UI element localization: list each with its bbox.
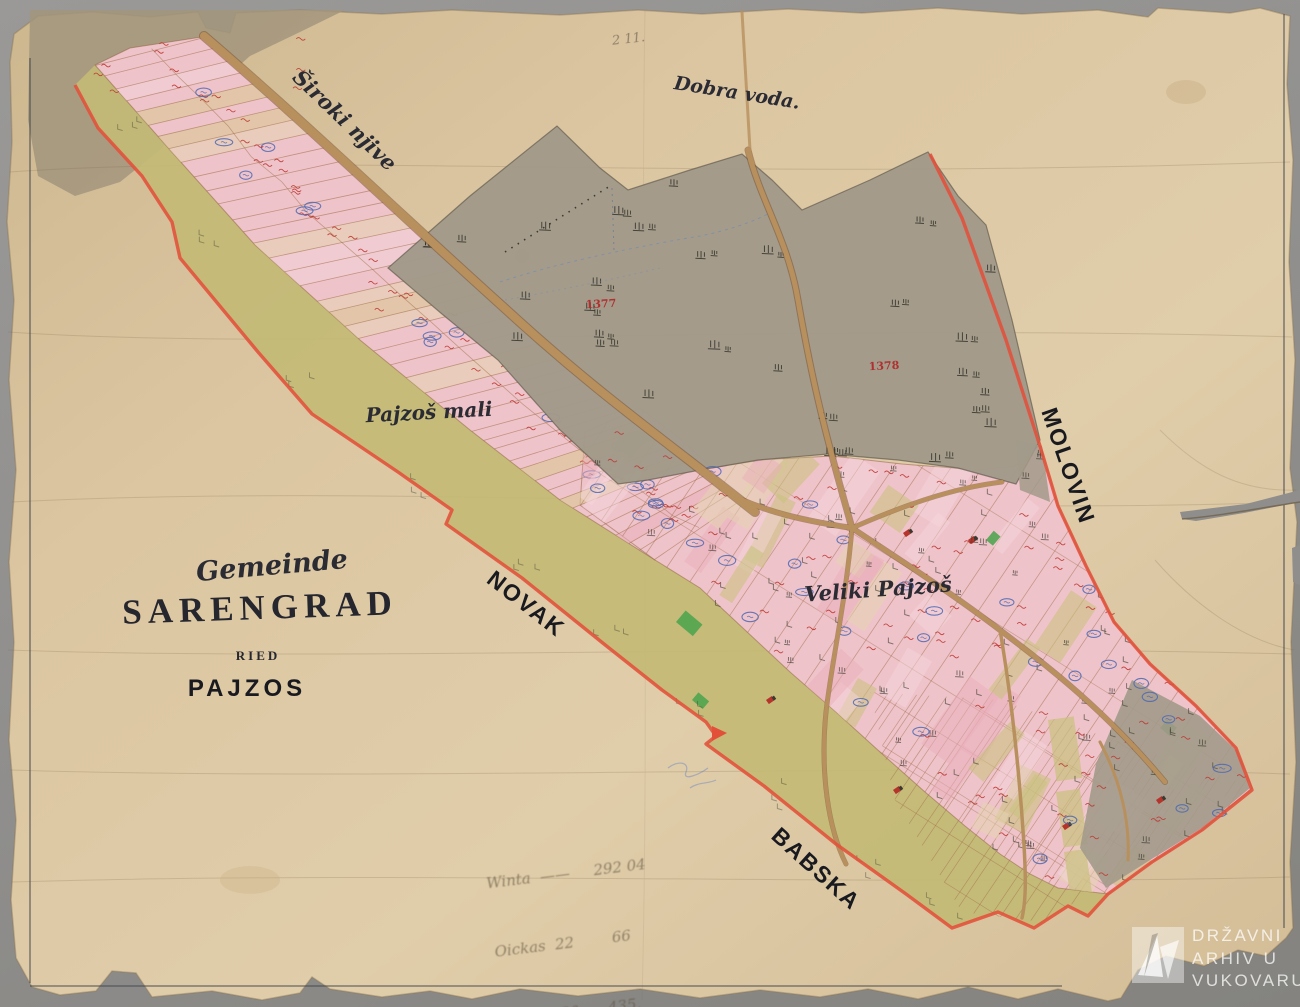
watermark-line: DRŽAVNI [1192,925,1300,948]
archive-watermark: DRŽAVNI ARHIV U VUKOVARU [1192,925,1300,993]
map-scan-artwork [0,0,1300,1007]
archive-logo-glyph [1132,927,1184,983]
watermark-line: VUKOVARU [1192,970,1300,993]
watermark-line: ARHIV U [1192,948,1300,971]
pencil-note-line: Wub 30 435. [502,990,664,1007]
pencil-note-line: Oickas 22 66 [493,921,655,963]
pencil-note-line: Winta —— 292 04 [485,853,647,895]
scanned-cadastral-map: Gemeinde SARENGRAD RIED PAJZOS Široki nj… [0,0,1300,1007]
archive-logo [1132,927,1184,983]
